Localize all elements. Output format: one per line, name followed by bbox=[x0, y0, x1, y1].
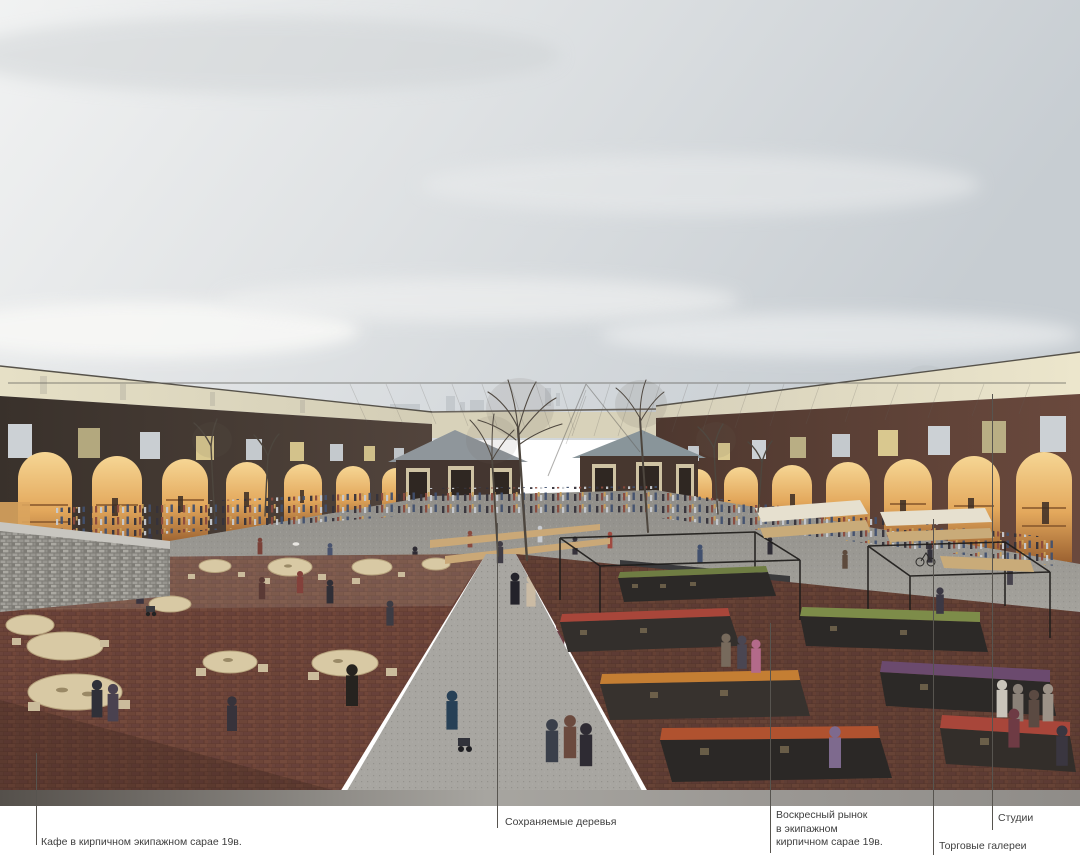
annotation-studios: Студии bbox=[998, 812, 1033, 826]
annotation-trees: Сохраняемые деревья bbox=[505, 816, 616, 830]
callout-line-trees bbox=[497, 523, 498, 828]
callout-line-studios bbox=[992, 394, 993, 830]
bottom-paving-strip bbox=[0, 790, 1080, 806]
annotation-galleries-text: Торговые галереи bbox=[939, 840, 1027, 854]
courtyard-render bbox=[0, 0, 1080, 806]
annotation-galleries: Торговые галереи bbox=[939, 840, 1027, 854]
annotation-cafe-text: Кафе в кирпичном экипажном сарае 19в. bbox=[41, 836, 242, 850]
callout-line-market bbox=[770, 623, 771, 853]
callout-line-cafe bbox=[36, 753, 37, 845]
annotation-market: Воскресный рынок в экипажном кирпичном с… bbox=[776, 809, 883, 850]
annotation-market-line1: Воскресный рынок bbox=[776, 809, 883, 823]
annotation-market-line3: кирпичном сарае 19в. bbox=[776, 836, 883, 850]
annotation-studios-text: Студии bbox=[998, 812, 1033, 826]
architecture-presentation-board: Кафе в кирпичном экипажном сарае 19в. Со… bbox=[0, 0, 1080, 861]
annotation-market-line2: в экипажном bbox=[776, 823, 883, 837]
callout-line-galleries bbox=[933, 519, 934, 855]
annotation-cafe: Кафе в кирпичном экипажном сарае 19в. bbox=[41, 836, 242, 850]
annotation-trees-text: Сохраняемые деревья bbox=[505, 816, 616, 830]
